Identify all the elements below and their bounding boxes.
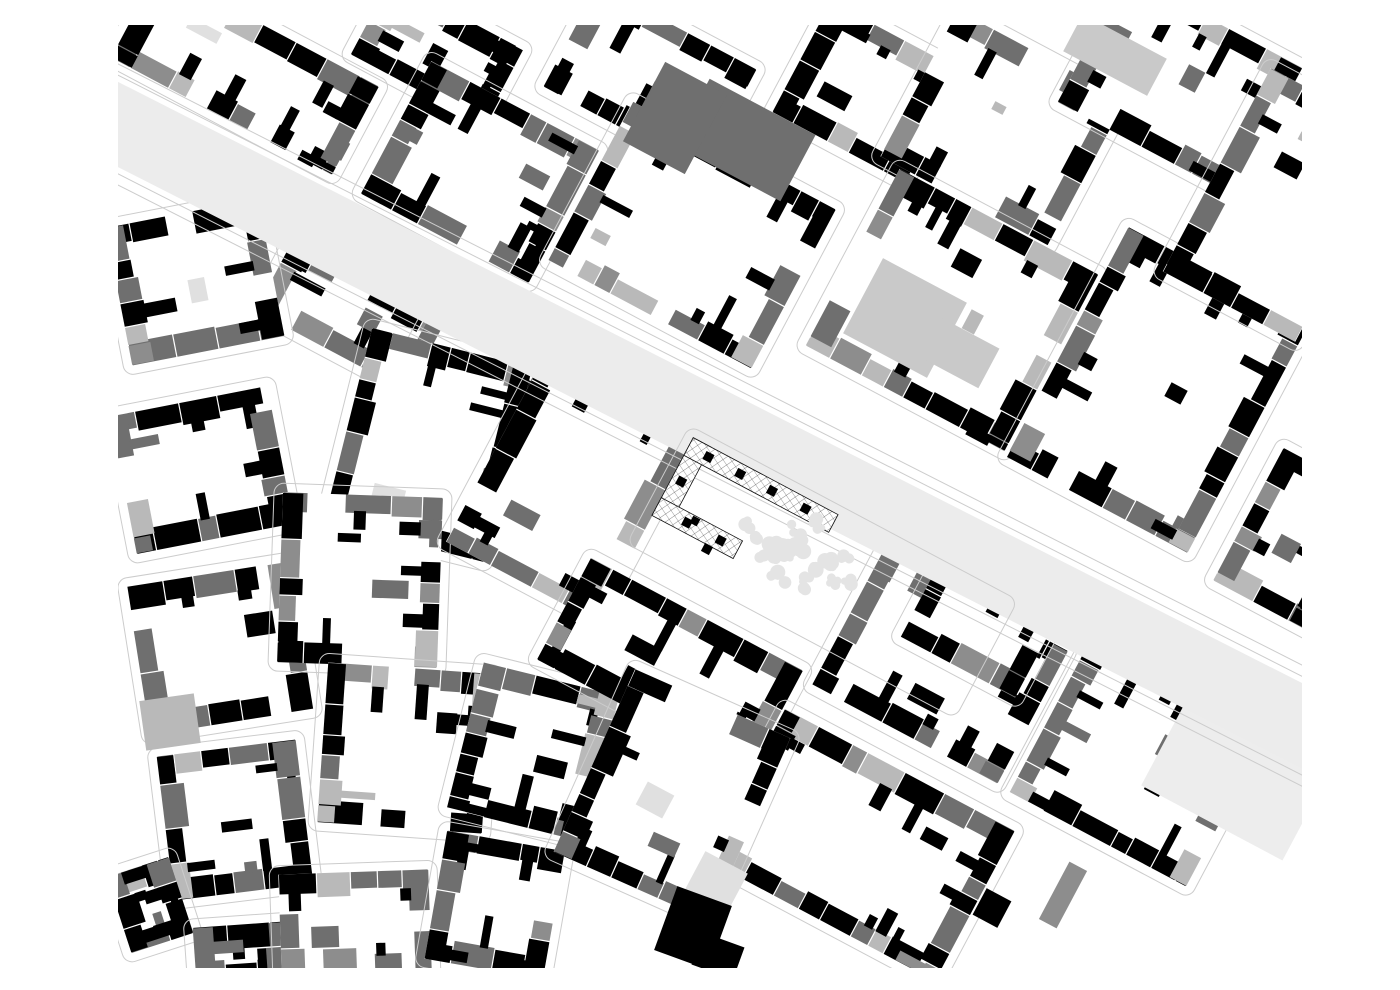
building-parcel: [280, 914, 300, 948]
building-parcel: [1305, 241, 1344, 289]
building-parcel: [278, 622, 298, 642]
figure-ground-map: [0, 0, 1400, 990]
building-parcel: [380, 809, 405, 828]
site-hatch-band: [652, 498, 743, 559]
building-parcel: [1324, 207, 1361, 250]
building-wing: [1322, 494, 1343, 525]
building-parcel: [440, 670, 461, 692]
building-parcel: [281, 493, 303, 539]
building-wing: [1358, 509, 1369, 522]
building-parcel: [404, 0, 451, 28]
building-parcel: [157, 755, 177, 784]
building-parcel: [1115, 0, 1142, 3]
building-parcel: [174, 751, 202, 774]
building-parcel: [279, 596, 296, 621]
building-parcel: [420, 583, 440, 603]
building-parcel: [1346, 192, 1370, 216]
city-block: [414, 820, 576, 990]
building-parcel: [116, 277, 142, 303]
building-wing: [403, 614, 425, 628]
building-parcel: [112, 260, 133, 280]
building-wing: [353, 511, 366, 530]
building-parcel: [320, 755, 340, 779]
courtyard-building: [372, 580, 409, 599]
landmark-building: [139, 693, 200, 750]
building-parcel: [272, 740, 300, 778]
building-wing: [1132, 0, 1162, 13]
building-parcel: [1304, 613, 1318, 631]
building-parcel: [323, 948, 357, 973]
tree: [823, 572, 844, 592]
building-parcel: [201, 748, 230, 768]
building-parcel: [422, 604, 439, 630]
building-parcel: [1360, 493, 1380, 515]
building-parcel: [226, 963, 258, 981]
building-parcel: [531, 920, 553, 941]
building-wing: [1319, 202, 1341, 220]
building-parcel: [421, 562, 441, 583]
building-parcel: [279, 873, 316, 894]
building-wing: [322, 618, 331, 645]
building-parcel: [279, 578, 302, 595]
building-wing: [212, 940, 244, 955]
building-wing: [1353, 127, 1383, 152]
building-wing: [376, 943, 386, 956]
building-parcel: [193, 927, 216, 971]
building-wing: [371, 686, 384, 712]
building-parcel: [280, 540, 300, 578]
building-parcel: [134, 535, 153, 553]
building-parcel: [408, 870, 429, 911]
building-parcel: [584, 0, 613, 19]
building-parcel: [196, 971, 220, 982]
building-wing: [217, 968, 245, 979]
building-parcel: [1372, 127, 1400, 154]
building-parcel: [415, 630, 439, 667]
building-parcel: [317, 872, 351, 897]
building-wing: [288, 892, 301, 912]
landmark-building: [1039, 862, 1087, 929]
building-parcel: [1143, 0, 1186, 23]
building-parcel: [283, 818, 308, 842]
building-parcel: [325, 663, 346, 704]
building-parcel: [1333, 107, 1379, 144]
building-parcel: [322, 735, 345, 755]
building-wing: [237, 588, 252, 600]
building-parcel: [378, 870, 402, 888]
building-wing: [181, 594, 195, 608]
building-wing: [400, 888, 411, 901]
building-parcel: [1350, 490, 1380, 521]
building-parcel: [318, 779, 342, 805]
courtyard-building: [436, 712, 457, 734]
building-wing: [399, 522, 421, 536]
figure-ground-map-page: [0, 0, 1400, 990]
building-wing: [415, 684, 429, 720]
city-block: [100, 375, 305, 564]
map-content: [36, 0, 1400, 990]
building-parcel: [168, 0, 198, 6]
building-parcel: [371, 666, 388, 690]
building-parcel: [323, 704, 343, 735]
building-wing: [244, 861, 258, 873]
building-parcel: [392, 496, 423, 517]
building-parcel: [235, 566, 260, 592]
building-parcel: [1315, 549, 1349, 588]
building-parcel: [317, 805, 335, 822]
building-parcel: [1304, 464, 1332, 492]
building-parcel: [1365, 130, 1400, 179]
building-parcel: [304, 642, 342, 664]
city-block: [269, 860, 441, 984]
building-parcel: [1300, 579, 1334, 618]
building-parcel: [1295, 86, 1341, 123]
city-block: [268, 483, 452, 677]
courtyard-building: [338, 533, 361, 543]
building-parcel: [425, 498, 443, 520]
building-parcel: [136, 0, 164, 22]
building-parcel: [1117, 0, 1151, 5]
building-parcel: [1351, 170, 1381, 200]
building-parcel: [345, 494, 391, 514]
building-parcel: [351, 871, 377, 888]
building-parcel: [380, 0, 411, 11]
building-parcel: [281, 949, 305, 974]
courtyard-building: [244, 611, 276, 638]
building-parcel: [141, 671, 168, 702]
building-parcel: [277, 642, 298, 662]
courtyard-building: [311, 926, 339, 948]
building-parcel: [1325, 474, 1368, 508]
building-wing: [401, 566, 423, 576]
building-parcel: [144, 0, 176, 5]
building-parcel: [214, 873, 234, 895]
